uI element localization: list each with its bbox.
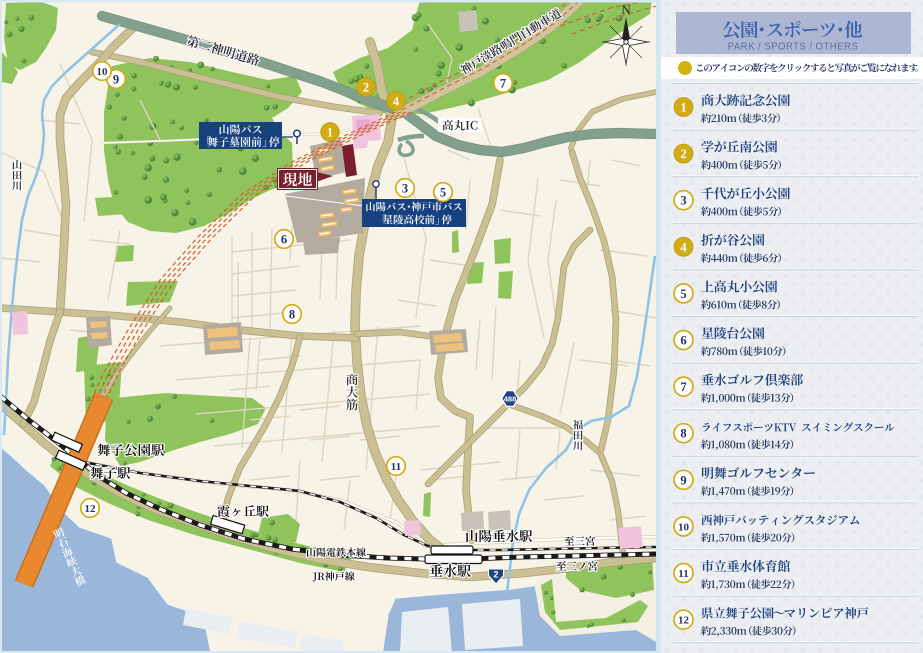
svg-text:6: 6 [281, 233, 287, 247]
svg-text:PARK / SPORTS / OTHERS: PARK / SPORTS / OTHERS [728, 42, 859, 53]
svg-text:4: 4 [680, 240, 687, 254]
svg-text:8: 8 [680, 427, 686, 441]
svg-text:2: 2 [363, 81, 369, 95]
svg-text:12: 12 [678, 615, 690, 627]
svg-text:1: 1 [327, 126, 333, 140]
svg-text:10: 10 [97, 66, 109, 78]
svg-text:12: 12 [85, 503, 97, 515]
svg-text:9: 9 [113, 73, 119, 87]
svg-text:5: 5 [440, 186, 446, 200]
svg-text:488: 488 [504, 395, 517, 404]
svg-text:4: 4 [393, 95, 400, 109]
svg-text:2: 2 [493, 570, 498, 580]
svg-text:7: 7 [680, 380, 686, 394]
svg-text:N: N [621, 2, 631, 17]
svg-text:11: 11 [678, 568, 688, 580]
svg-text:8: 8 [289, 308, 295, 322]
svg-text:10: 10 [678, 521, 690, 533]
svg-text:1: 1 [680, 101, 686, 115]
svg-text:6: 6 [680, 334, 686, 348]
svg-text:3: 3 [402, 182, 408, 196]
svg-text:7: 7 [500, 77, 506, 91]
svg-text:2: 2 [680, 147, 686, 161]
svg-text:9: 9 [680, 473, 686, 487]
svg-text:3: 3 [680, 194, 686, 208]
svg-text:11: 11 [391, 461, 401, 473]
svg-text:5: 5 [680, 287, 686, 301]
